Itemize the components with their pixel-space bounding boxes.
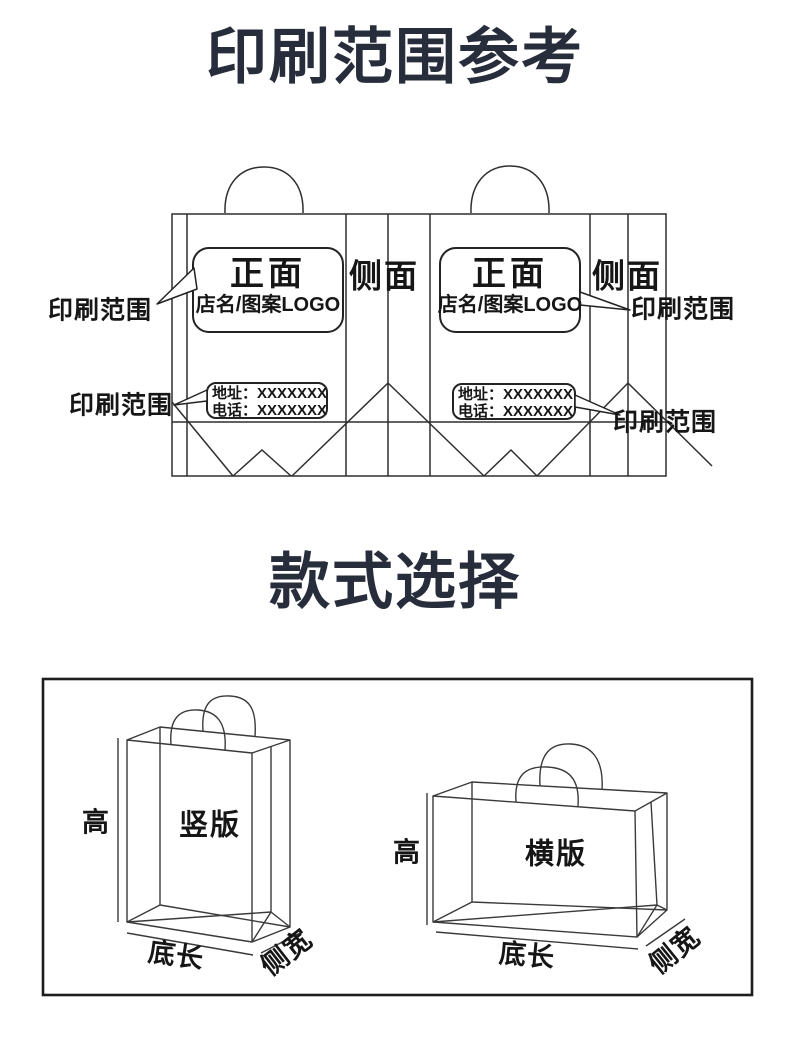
line-art-canvas bbox=[0, 0, 790, 1040]
print-range-label-right-bottom: 印刷范围 bbox=[613, 411, 717, 436]
pointer-left-bottom bbox=[174, 390, 207, 405]
front-panel-sublabel-1: 店名/图案LOGO bbox=[196, 295, 340, 315]
side-panel-label-2: 侧面 bbox=[592, 260, 662, 293]
front-panel-label-2: 正面 bbox=[472, 257, 548, 291]
front-panel-label-1: 正面 bbox=[230, 257, 306, 291]
h-bag-bottom-length-label: 底长 bbox=[498, 940, 556, 972]
pointer-right-top bbox=[580, 292, 630, 310]
phone-line-1: 电话：XXXXXXX bbox=[212, 402, 327, 419]
v-bag-handle-back bbox=[203, 696, 256, 736]
address-box-text-2: 地址：XXXXXXX 电话：XXXXXXX bbox=[458, 386, 573, 420]
print-range-label-left-top: 印刷范围 bbox=[48, 299, 152, 324]
horizontal-bag-label: 横版 bbox=[525, 841, 587, 870]
handle-arc-right bbox=[471, 166, 549, 213]
side-panel-label-1: 侧面 bbox=[349, 260, 419, 293]
address-line-2: 地址：XXXXXXX bbox=[458, 386, 573, 403]
v-bag-height-label: 高 bbox=[82, 810, 110, 837]
v-bag-handle-front bbox=[171, 710, 225, 750]
print-range-label-left-bottom: 印刷范围 bbox=[69, 394, 173, 419]
address-line-1: 地址：XXXXXXX bbox=[212, 385, 327, 402]
bag-printing-poster: 印刷范围参考 正面 店名/图案LOGO 正面 店名/图案LOGO 侧面 侧面 地… bbox=[0, 0, 790, 1040]
h-bag-height-label: 高 bbox=[393, 840, 421, 867]
pointer-left-top bbox=[157, 268, 197, 304]
address-box-text-1: 地址：XXXXXXX 电话：XXXXXXX bbox=[212, 385, 327, 419]
vertical-bag-label: 竖版 bbox=[179, 812, 241, 841]
print-range-label-right-top: 印刷范围 bbox=[631, 298, 735, 323]
style-selection-title: 款式选择 bbox=[269, 552, 521, 613]
phone-line-2: 电话：XXXXXXX bbox=[458, 403, 573, 420]
front-panel-sublabel-2: 店名/图案LOGO bbox=[438, 295, 582, 315]
print-range-title: 印刷范围参考 bbox=[206, 27, 584, 88]
handle-arc-left bbox=[225, 167, 303, 213]
